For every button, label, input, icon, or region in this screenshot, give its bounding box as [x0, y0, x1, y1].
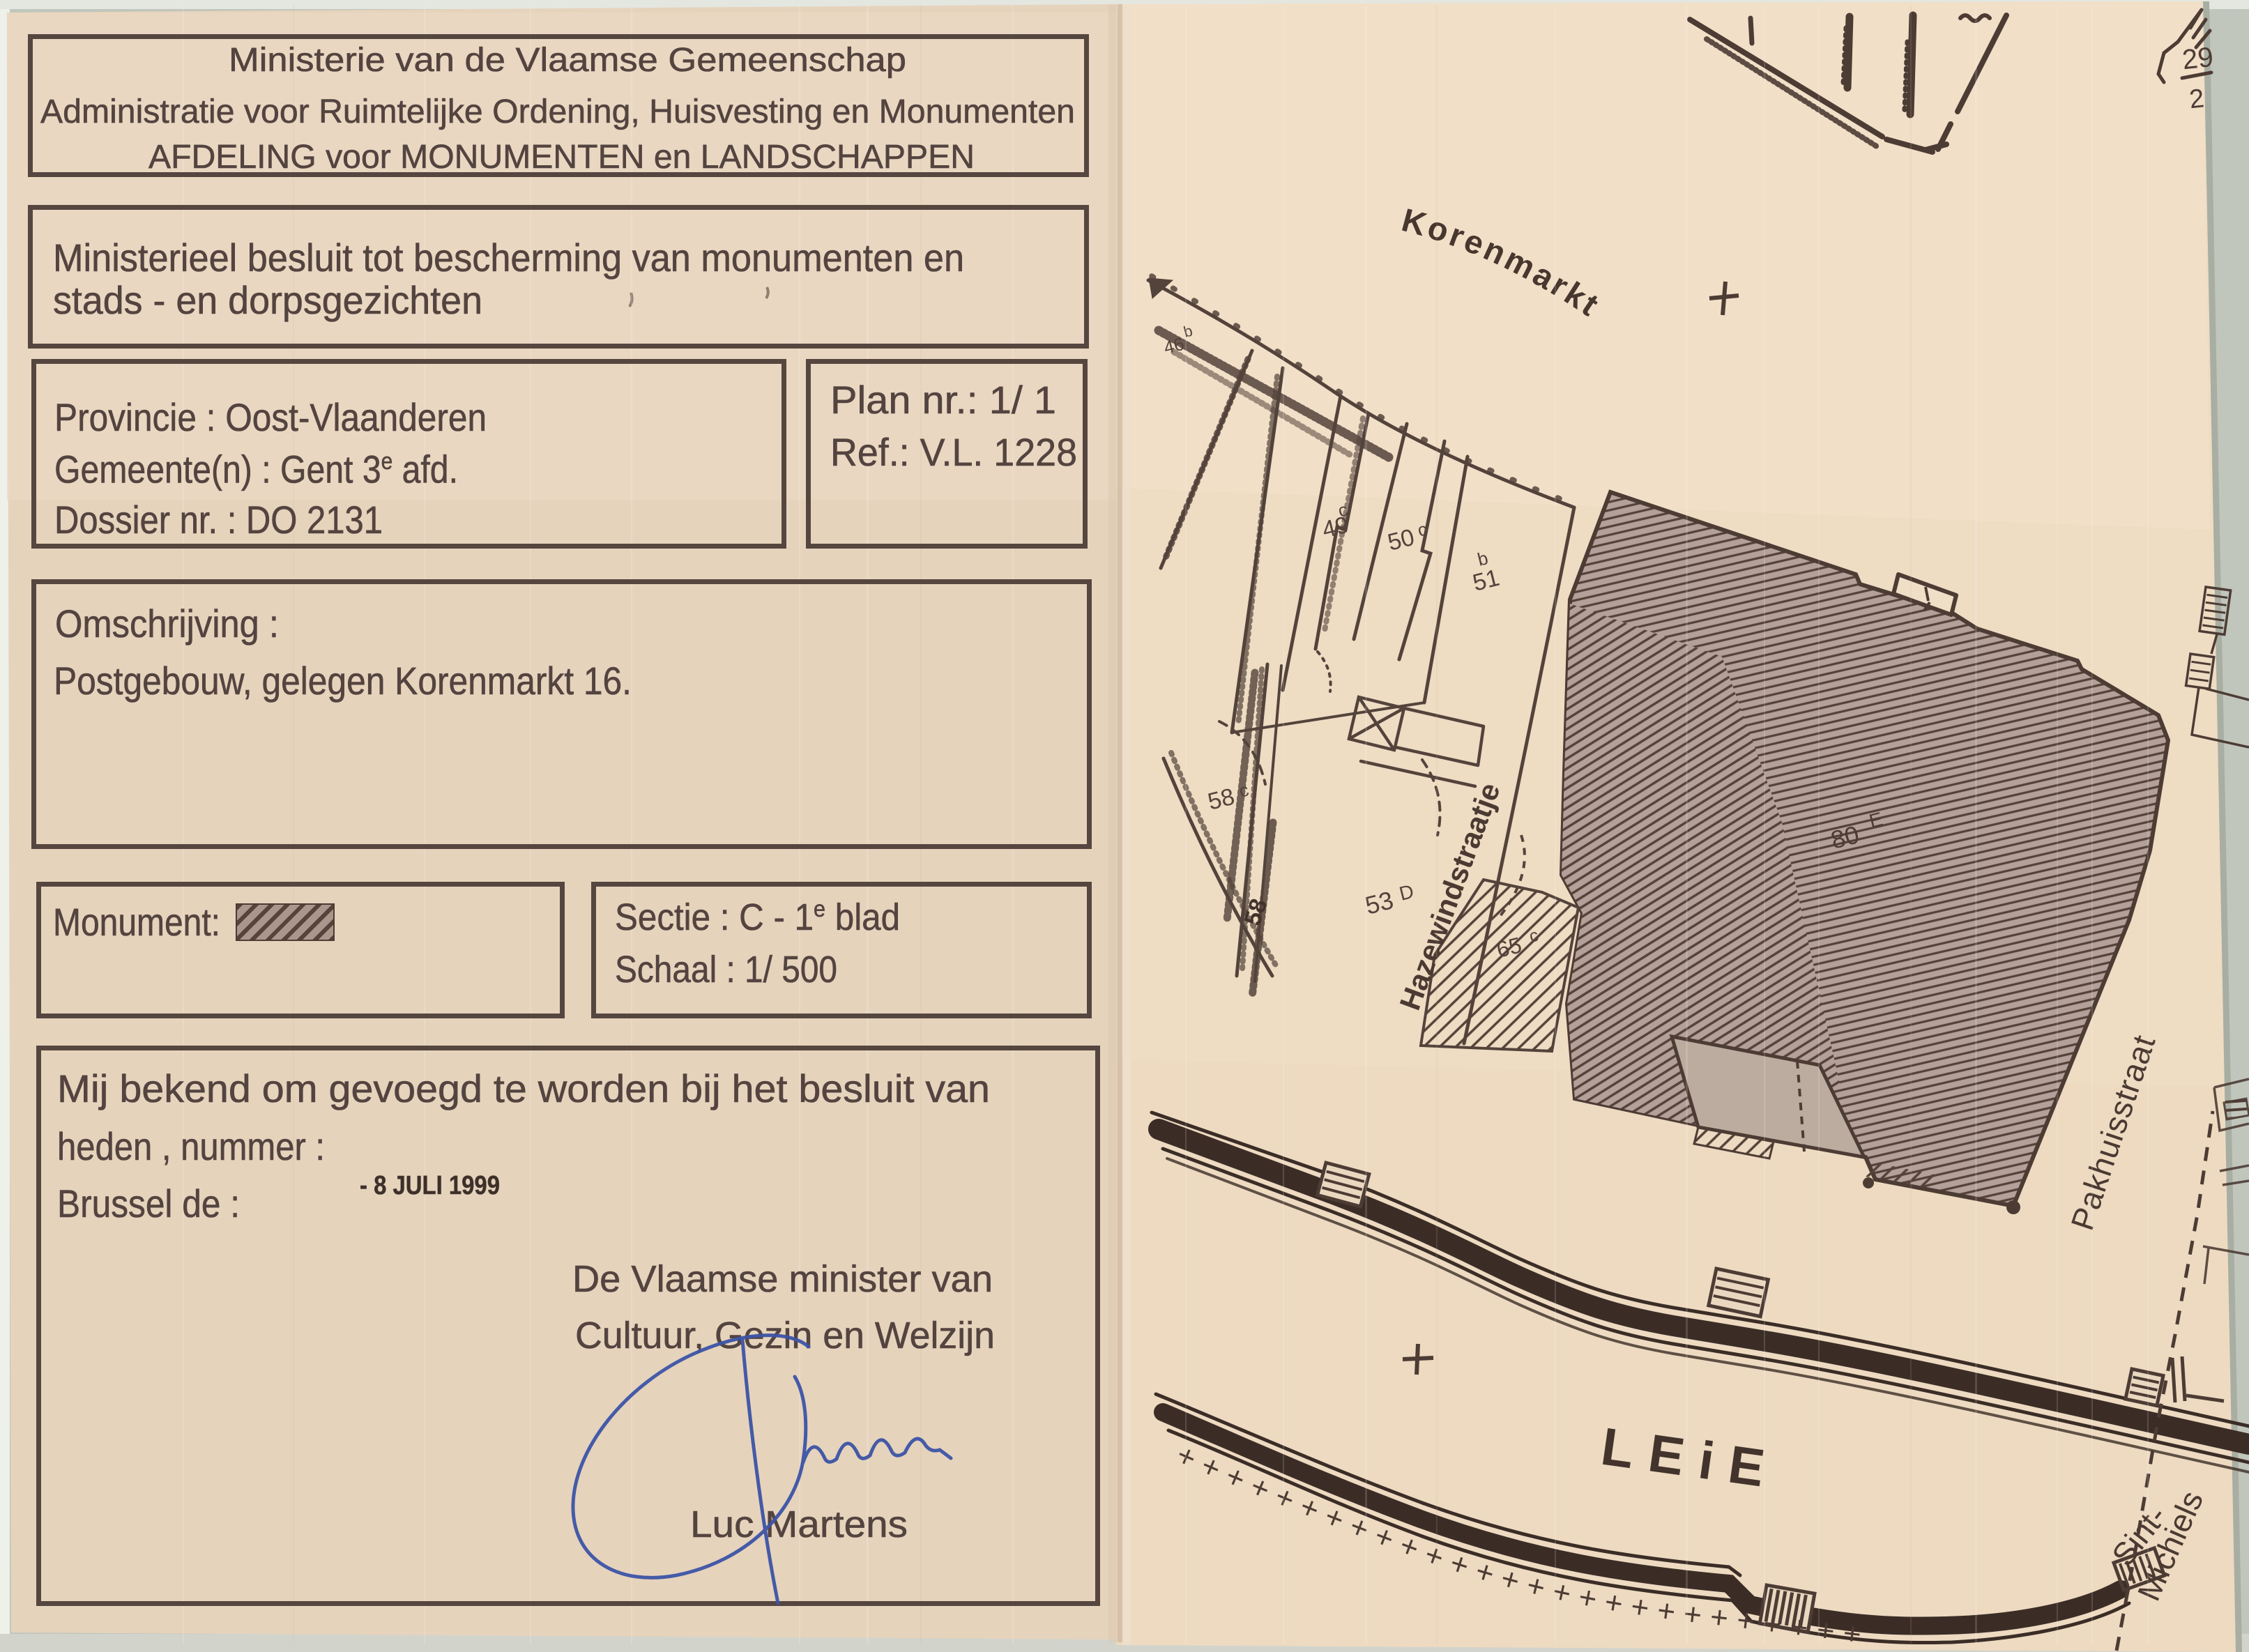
svg-text:29: 29 — [2181, 42, 2215, 75]
svg-text:2: 2 — [2188, 84, 2205, 114]
